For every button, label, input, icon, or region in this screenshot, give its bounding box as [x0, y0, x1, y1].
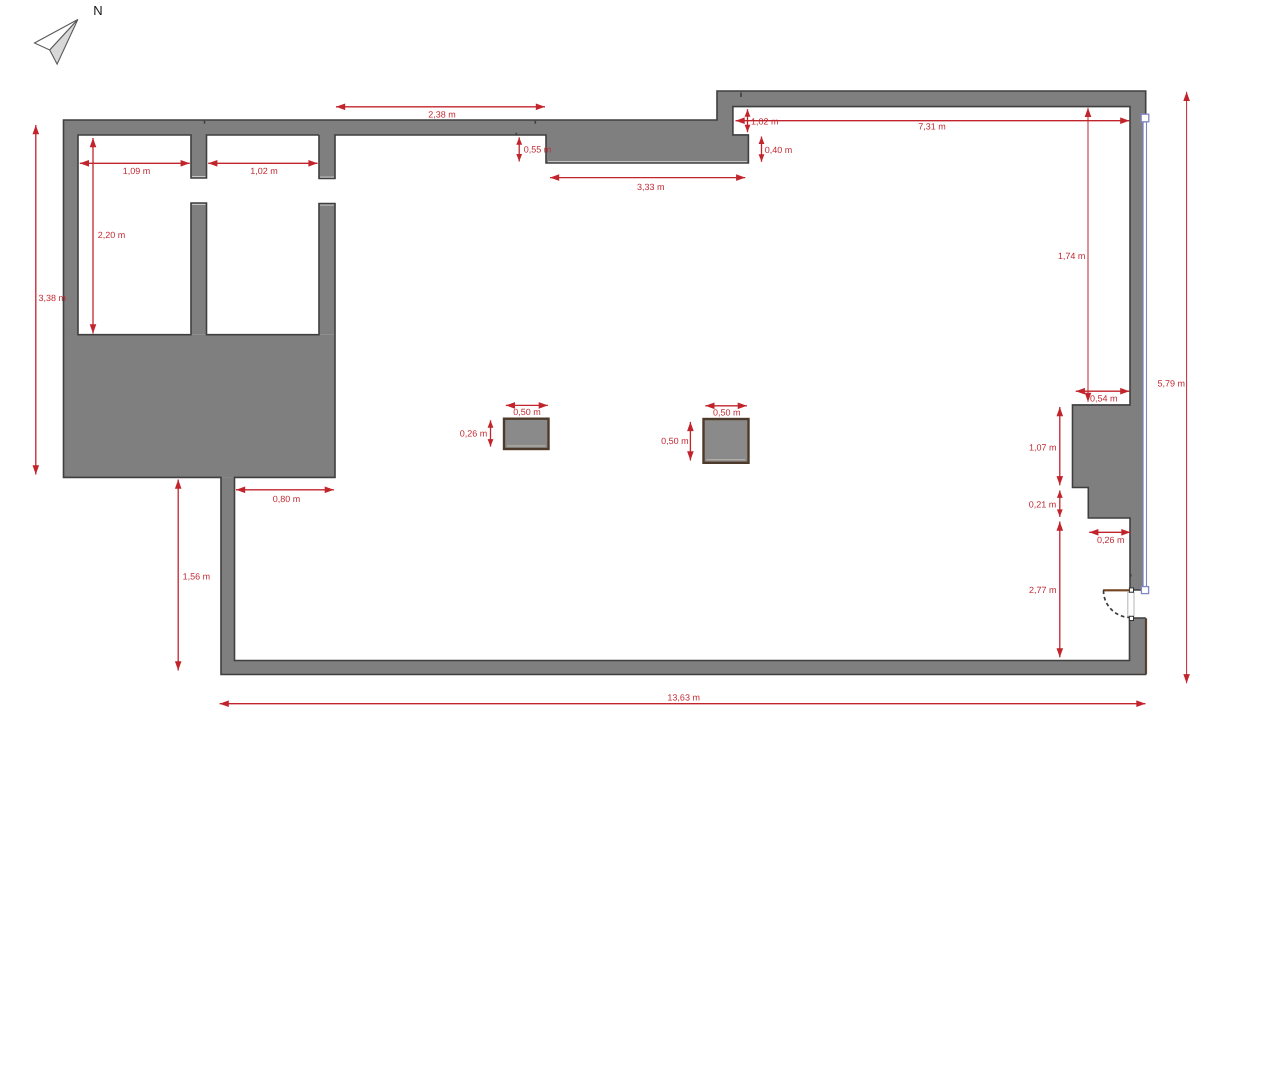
svg-text:0,50 m: 0,50 m	[661, 436, 689, 446]
svg-text:13,63 m: 13,63 m	[667, 692, 700, 702]
svg-text:0,26 m: 0,26 m	[460, 428, 488, 438]
svg-text:1,09 m: 1,09 m	[123, 166, 151, 176]
svg-text:1,56 m: 1,56 m	[183, 572, 211, 582]
svg-text:0,40 m: 0,40 m	[765, 145, 793, 155]
svg-text:2,38 m: 2,38 m	[428, 109, 456, 119]
svg-text:2,20 m: 2,20 m	[98, 230, 126, 240]
svg-text:0,54 m: 0,54 m	[1090, 393, 1118, 403]
svg-text:1,07 m: 1,07 m	[1029, 442, 1057, 452]
svg-text:0,50 m: 0,50 m	[713, 408, 741, 418]
svg-text:1,02 m: 1,02 m	[250, 166, 278, 176]
svg-text:5,79 m: 5,79 m	[1158, 378, 1186, 388]
svg-text:2,77 m: 2,77 m	[1029, 585, 1057, 595]
svg-text:3,33 m: 3,33 m	[637, 182, 665, 192]
svg-text:3,38 m: 3,38 m	[39, 293, 67, 303]
svg-text:0,26 m: 0,26 m	[1097, 535, 1125, 545]
svg-text:0,80 m: 0,80 m	[273, 494, 301, 504]
svg-text:0,50 m: 0,50 m	[513, 407, 541, 417]
svg-text:0,55 m: 0,55 m	[524, 144, 552, 154]
svg-text:N: N	[93, 3, 102, 18]
svg-text:1,74 m: 1,74 m	[1058, 251, 1086, 261]
svg-text:7,31 m: 7,31 m	[918, 122, 946, 132]
svg-text:0,21 m: 0,21 m	[1029, 500, 1057, 510]
svg-text:1,02 m: 1,02 m	[751, 117, 779, 127]
